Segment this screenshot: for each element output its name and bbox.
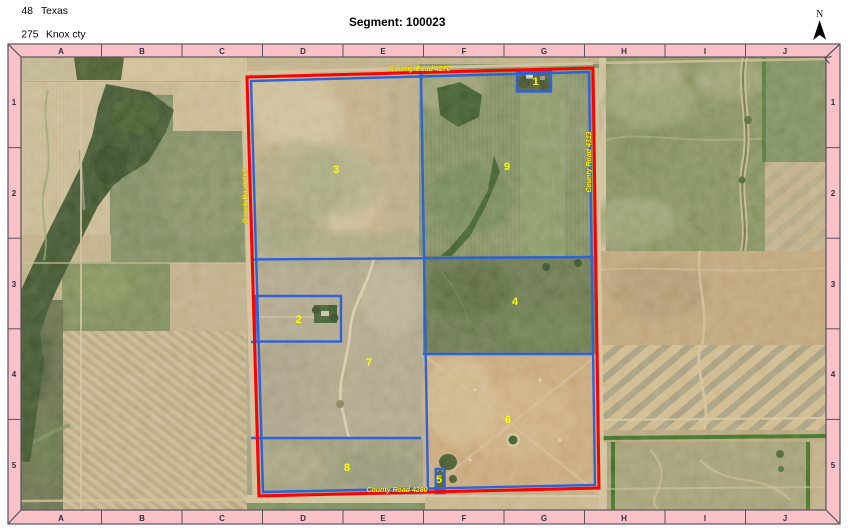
svg-text:7: 7 (366, 357, 372, 369)
svg-text:6: 6 (505, 414, 511, 426)
svg-text:Segment: 100023: Segment: 100023 (349, 15, 446, 29)
svg-text:A: A (58, 47, 64, 56)
svg-text:1: 1 (12, 98, 17, 107)
svg-text:3: 3 (333, 164, 339, 176)
svg-text:I: I (704, 47, 706, 56)
svg-text:J: J (783, 47, 787, 56)
svg-text:H: H (621, 47, 627, 56)
svg-text:5: 5 (12, 461, 17, 470)
svg-text:D: D (300, 47, 306, 56)
svg-text:F: F (462, 47, 467, 56)
svg-text:G: G (541, 47, 547, 56)
svg-text:8: 8 (344, 462, 350, 474)
svg-text:5: 5 (436, 474, 442, 486)
svg-text:N: N (816, 9, 823, 20)
svg-text:E: E (380, 514, 386, 523)
svg-text:C: C (219, 47, 225, 56)
svg-text:2: 2 (12, 189, 17, 198)
svg-text:I: I (704, 514, 706, 523)
svg-text:G: G (541, 514, 547, 523)
svg-text:C: C (219, 514, 225, 523)
svg-text:County Road 4280: County Road 4280 (366, 487, 427, 494)
svg-text:275: 275 (21, 29, 38, 40)
svg-text:H: H (621, 514, 627, 523)
svg-text:E: E (380, 47, 386, 56)
svg-text:4: 4 (512, 296, 519, 308)
svg-text:3: 3 (831, 280, 836, 289)
svg-text:County Road 4313: County Road 4313 (586, 131, 593, 192)
svg-text:48: 48 (22, 6, 34, 17)
svg-text:9: 9 (504, 161, 510, 173)
svg-text:Texas: Texas (41, 6, 68, 17)
svg-text:B: B (139, 47, 145, 56)
svg-text:B: B (139, 514, 145, 523)
svg-text:4: 4 (831, 370, 836, 379)
svg-text:County Road 4270: County Road 4270 (389, 66, 450, 73)
svg-text:1: 1 (831, 98, 836, 107)
svg-text:1: 1 (533, 76, 539, 88)
svg-text:Knox cty: Knox cty (46, 29, 86, 40)
svg-text:2: 2 (831, 189, 836, 198)
svg-text:2: 2 (296, 314, 302, 326)
svg-text:Ranch Road 367: Ranch Road 367 (243, 168, 250, 224)
svg-text:5: 5 (831, 461, 836, 470)
svg-text:4: 4 (12, 370, 17, 379)
svg-text:A: A (58, 514, 64, 523)
svg-text:D: D (300, 514, 306, 523)
svg-text:F: F (462, 514, 467, 523)
svg-text:3: 3 (12, 280, 17, 289)
svg-text:J: J (783, 514, 787, 523)
